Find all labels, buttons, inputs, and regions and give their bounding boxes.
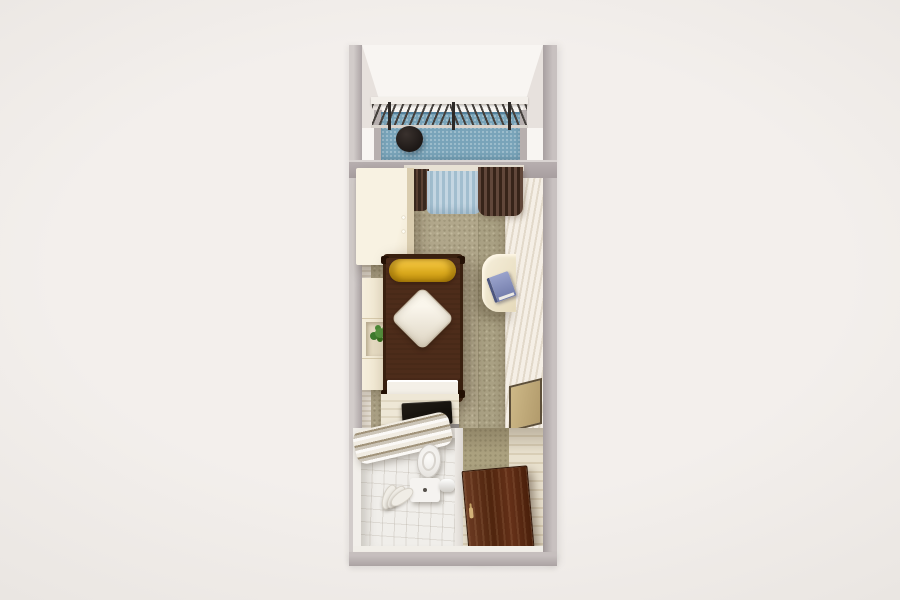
- bolster-pillow: [389, 259, 456, 282]
- curtain-sheer-blue: [427, 171, 480, 214]
- wardrobe: [356, 168, 414, 265]
- entry-hall: [463, 428, 543, 552]
- wardrobe-knob: [402, 230, 405, 233]
- entrance-door: [462, 465, 535, 552]
- wardrobe-side-face: [407, 168, 414, 265]
- outer-wall-bottom: [349, 552, 557, 566]
- railing-bars-left: [372, 104, 450, 126]
- railing-post: [508, 102, 511, 130]
- bathroom: [353, 428, 463, 552]
- toilet-seat: [421, 450, 437, 472]
- room-shadow-right: [494, 178, 506, 470]
- railing-post: [452, 102, 455, 130]
- bed: [383, 254, 463, 402]
- curtain-brown-right: [478, 167, 523, 216]
- cabinet-button: [423, 488, 427, 492]
- railing-bottom-rail: [371, 125, 528, 128]
- hall-shadow: [463, 428, 543, 454]
- paper-roll: [439, 479, 455, 492]
- railing-bars-right: [450, 104, 527, 126]
- floor-towel: [383, 484, 409, 512]
- floor-plan-stage: [0, 0, 900, 600]
- wall-cabinet-upper: [509, 378, 542, 432]
- door-handle: [469, 507, 474, 518]
- bathroom-cabinet: [410, 478, 440, 502]
- balcony-railing: [371, 97, 528, 132]
- balcony-table: [396, 126, 423, 152]
- wardrobe-knob: [402, 216, 405, 219]
- outer-wall-right: [543, 45, 557, 564]
- railing-post: [388, 102, 391, 130]
